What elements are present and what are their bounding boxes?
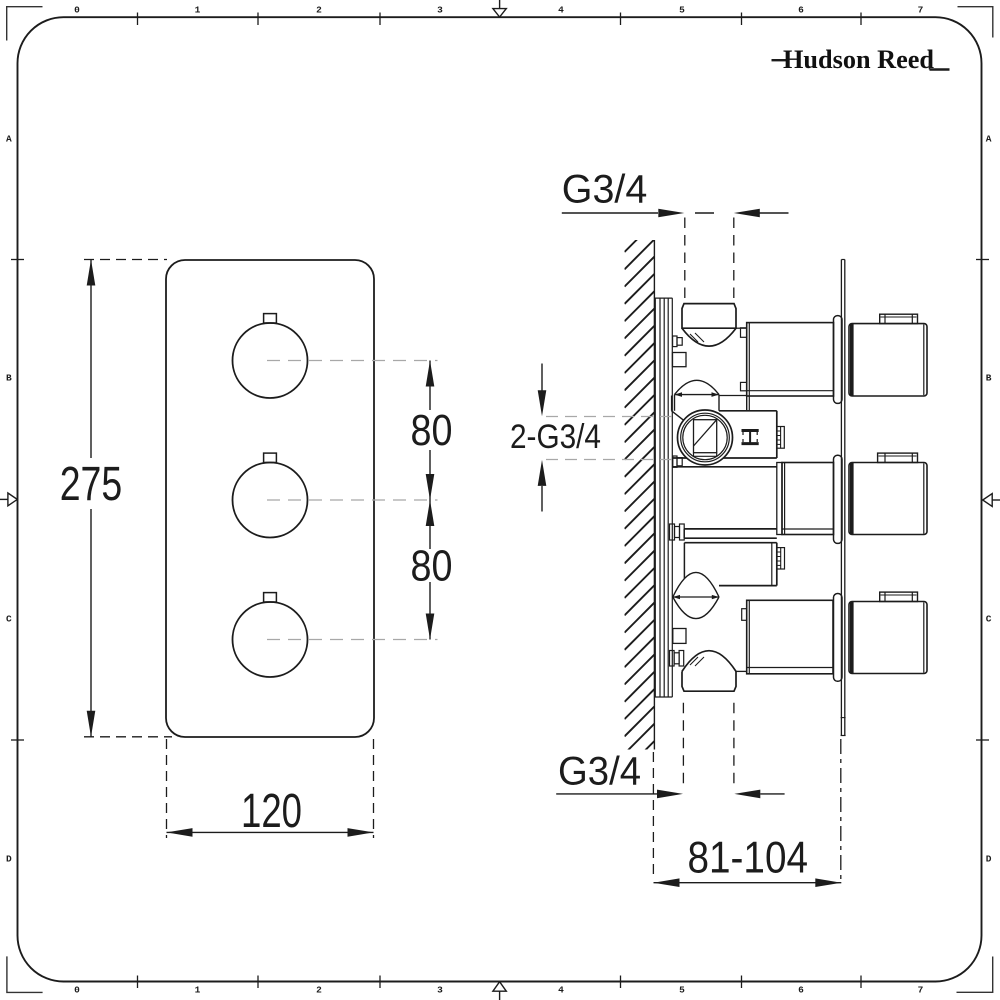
svg-text:5: 5 (679, 4, 685, 15)
svg-text:D: D (986, 854, 992, 865)
svg-text:3: 3 (437, 4, 443, 15)
svg-text:2-G3/4: 2-G3/4 (510, 418, 601, 456)
svg-text:G3/4: G3/4 (558, 750, 641, 794)
svg-text:A: A (6, 134, 12, 145)
svg-text:7: 7 (918, 985, 924, 996)
svg-text:2: 2 (316, 985, 322, 996)
svg-text:81-104: 81-104 (688, 834, 809, 883)
svg-text:275: 275 (60, 458, 122, 511)
svg-text:1: 1 (195, 985, 201, 996)
svg-text:80: 80 (411, 406, 453, 455)
svg-text:5: 5 (679, 985, 685, 996)
svg-text:1: 1 (195, 4, 201, 15)
svg-text:D: D (6, 854, 12, 865)
svg-text:G3/4: G3/4 (562, 168, 648, 212)
svg-text:C: C (6, 614, 12, 625)
svg-text:A: A (986, 134, 992, 145)
svg-text:4: 4 (558, 985, 564, 996)
svg-text:Hudson Reed: Hudson Reed (783, 44, 934, 74)
svg-text:C: C (986, 614, 992, 625)
svg-text:4: 4 (558, 4, 564, 15)
svg-text:3: 3 (437, 985, 443, 996)
svg-text:0: 0 (74, 985, 80, 996)
svg-text:0: 0 (74, 4, 80, 15)
svg-text:6: 6 (798, 985, 804, 996)
svg-text:B: B (6, 373, 12, 384)
svg-text:7: 7 (918, 4, 924, 15)
svg-text:2: 2 (316, 4, 322, 15)
svg-text:120: 120 (241, 785, 302, 838)
svg-text:6: 6 (798, 4, 804, 15)
svg-text:B: B (986, 373, 992, 384)
svg-text:80: 80 (411, 542, 453, 591)
